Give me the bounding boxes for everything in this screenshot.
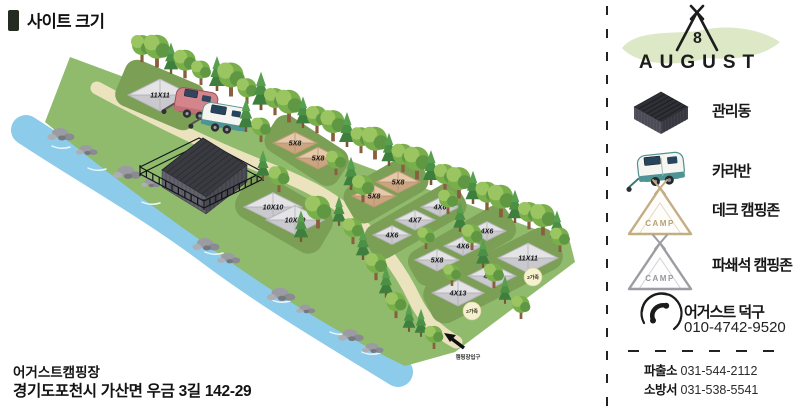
phone-icon (631, 283, 691, 343)
tree-icon (144, 35, 170, 68)
building-icon (626, 83, 696, 135)
site-label: 4X6 (456, 242, 471, 251)
site-label: 4X6 (385, 231, 400, 240)
police-phone: 031-544-2112 (681, 364, 758, 378)
site-label: 11X11 (518, 254, 538, 263)
legend-label-caravan: 카라반 (712, 160, 750, 181)
campground-map: 11X11 5X8 5X8 5X8 (0, 0, 600, 418)
deck-tent-text: CAMP (645, 219, 675, 228)
title-bullet-icon (8, 10, 19, 31)
badge-label: 2가족 (466, 308, 478, 315)
logo-number: 8 (693, 30, 702, 47)
emergency-row: 소방서 031-538-5541 (644, 381, 758, 400)
site-label: 5X8 (431, 256, 444, 265)
emergency-divider (628, 350, 786, 352)
logo-wordmark: AUGUST (639, 52, 761, 73)
tree-icon (362, 127, 388, 160)
title-text: 사이트 크기 (27, 8, 104, 32)
legend-label-deck: 데크 캠핑존 (712, 199, 779, 220)
site-label: 5X8 (312, 154, 325, 163)
campground-address: 경기도포천시 가산면 우금 3길 142-29 (13, 379, 251, 401)
emergency-row: 파출소 031-544-2112 (644, 362, 758, 381)
site-label: 5X8 (392, 178, 405, 187)
site-label: 4X7 (408, 216, 423, 225)
fire-label: 소방서 (644, 383, 677, 397)
page-title: 사이트 크기 (8, 8, 104, 32)
site-label: 5X8 (289, 139, 302, 148)
site-label: 4X13 (449, 289, 467, 298)
emergency-numbers: 파출소 031-544-2112 소방서 031-538-5541 (644, 362, 758, 400)
entrance-label: 캠핑장입구 (456, 353, 481, 361)
campground-name: 어거스트캠핑장 (13, 361, 100, 381)
family-badge: 2가족 (463, 302, 481, 320)
fire-phone: 031-538-5541 (681, 383, 759, 397)
site-label: 10X10 (263, 203, 284, 212)
contact-phone: 010-4742-9520 (684, 319, 786, 336)
august-logo: 8 AUGUST (612, 4, 792, 78)
legend-label-gravel: 파쇄석 캠핑존 (712, 254, 792, 275)
tree-icon (191, 61, 211, 85)
site-label: 11X11 (150, 91, 170, 100)
police-label: 파출소 (644, 364, 677, 378)
deck-tent-icon: CAMP (624, 178, 696, 236)
legend-label-building: 관리동 (712, 100, 750, 121)
gravel-tent-text: CAMP (645, 274, 675, 283)
tree-icon (512, 296, 531, 319)
badge-label: 2가족 (527, 274, 539, 281)
campground-infographic: 11X11 5X8 5X8 5X8 (0, 0, 800, 418)
info-panel: 8 AUGUST (600, 0, 800, 418)
family-badge: 2가족 (524, 268, 542, 286)
